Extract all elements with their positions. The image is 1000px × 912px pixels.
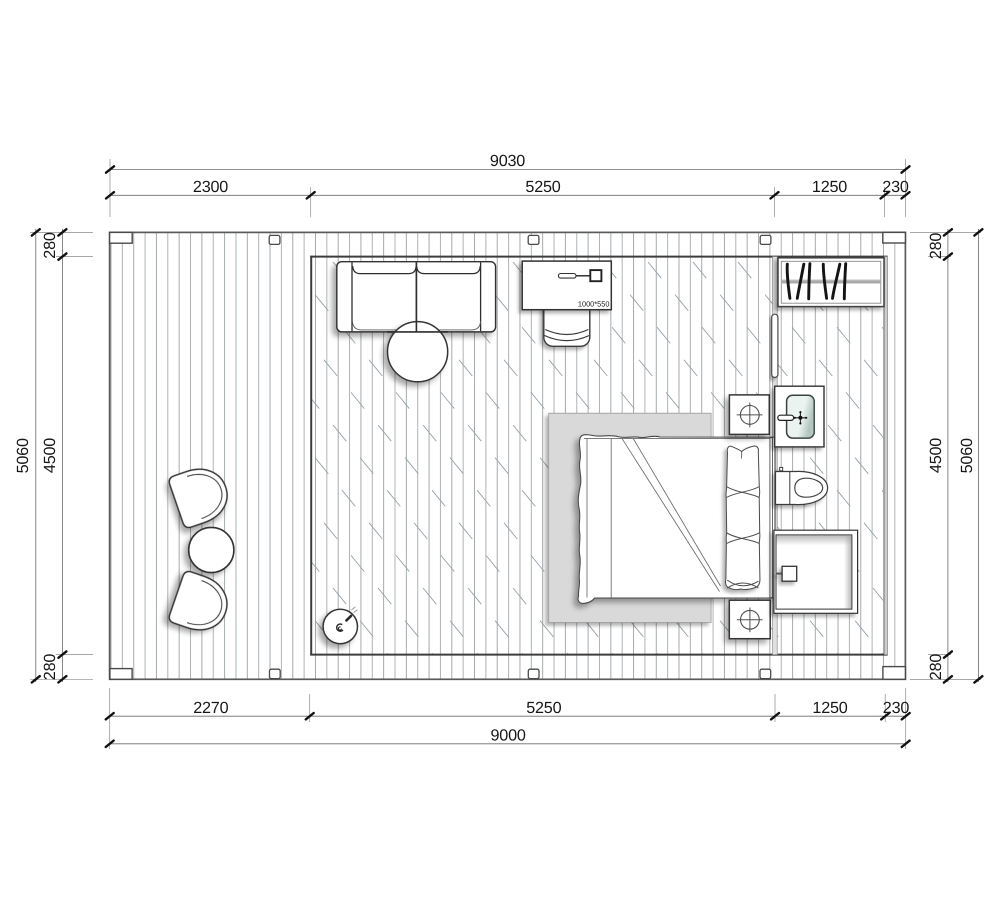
svg-text:9000: 9000 xyxy=(490,727,525,745)
svg-text:4500: 4500 xyxy=(927,438,945,473)
svg-text:4500: 4500 xyxy=(41,438,59,473)
svg-text:5060: 5060 xyxy=(958,438,976,473)
svg-text:5060: 5060 xyxy=(14,438,32,473)
svg-text:280: 280 xyxy=(927,654,945,681)
svg-text:280: 280 xyxy=(41,232,59,259)
svg-text:5250: 5250 xyxy=(525,178,560,196)
svg-text:280: 280 xyxy=(927,233,945,260)
svg-text:230: 230 xyxy=(882,178,909,196)
svg-text:5250: 5250 xyxy=(526,699,561,717)
svg-text:1250: 1250 xyxy=(812,699,847,717)
svg-text:280: 280 xyxy=(41,654,59,681)
svg-text:9030: 9030 xyxy=(490,152,525,170)
svg-text:2270: 2270 xyxy=(193,699,228,717)
svg-text:2300: 2300 xyxy=(193,178,228,196)
svg-text:1000*550: 1000*550 xyxy=(578,299,610,308)
svg-text:1250: 1250 xyxy=(812,178,847,196)
svg-text:230: 230 xyxy=(883,699,910,717)
